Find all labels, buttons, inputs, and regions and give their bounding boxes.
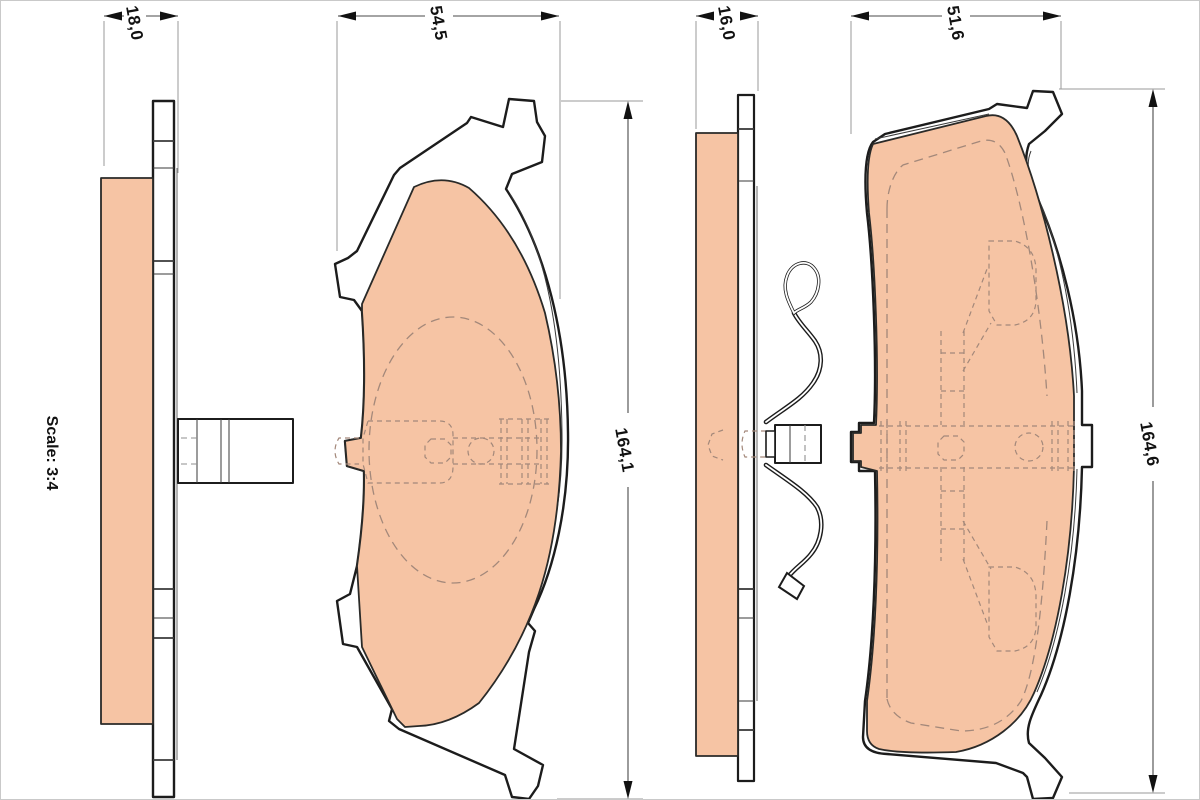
- spring-lower: [766, 465, 821, 576]
- brake-pad-technical-drawing: 18,0 54,5 164,1 16,0 51,6: [0, 0, 1200, 800]
- dim-label-thickness-b: 16,0: [714, 4, 739, 42]
- drawing-canvas: 18,0 54,5 164,1 16,0 51,6: [1, 1, 1200, 800]
- arrowhead-up: [1149, 89, 1158, 107]
- backing-plate-side: [153, 101, 174, 797]
- dim-pad-a-height: 164,1: [557, 101, 643, 799]
- spring-lower-core: [766, 465, 821, 576]
- pad-b-side-view: [696, 95, 821, 781]
- dim-label-width-b: 51,6: [943, 4, 968, 42]
- dim-label-width-a: 54,5: [426, 4, 451, 42]
- arrowhead-left: [851, 12, 869, 21]
- arrowhead-right: [160, 12, 178, 21]
- friction-material-side: [696, 133, 738, 756]
- clip-cap: [766, 431, 775, 457]
- retaining-clip-side: [178, 419, 293, 483]
- pad-a-front-view: [335, 99, 568, 799]
- arrowhead-down: [624, 781, 633, 799]
- arrowhead-up: [624, 101, 633, 119]
- arrowhead-left: [338, 12, 356, 21]
- arrowhead-left: [104, 12, 122, 21]
- dim-label-height-b: 164,6: [1136, 420, 1163, 468]
- arrowhead-right: [541, 12, 559, 21]
- clip-body: [775, 425, 821, 463]
- spring-loop-core: [785, 263, 819, 313]
- backing-plate-side: [738, 95, 754, 781]
- pad-a-side-view: [101, 101, 293, 797]
- spring-upper: [766, 313, 821, 422]
- spring-upper-core: [766, 313, 821, 422]
- arrowhead-down: [1149, 775, 1158, 793]
- friction-material-front: [853, 115, 1074, 752]
- spring-foot: [779, 573, 804, 599]
- dim-label-thickness-a: 18,0: [122, 4, 147, 42]
- scale-label: Scale: 3:4: [43, 416, 60, 491]
- friction-material-side: [101, 178, 153, 724]
- pad-b-front-view: [851, 91, 1092, 799]
- arrowhead-right: [1043, 12, 1061, 21]
- arrowhead-right: [740, 12, 758, 21]
- dim-label-height-a: 164,1: [611, 426, 638, 474]
- arrowhead-left: [696, 12, 714, 21]
- clip-body: [178, 419, 293, 483]
